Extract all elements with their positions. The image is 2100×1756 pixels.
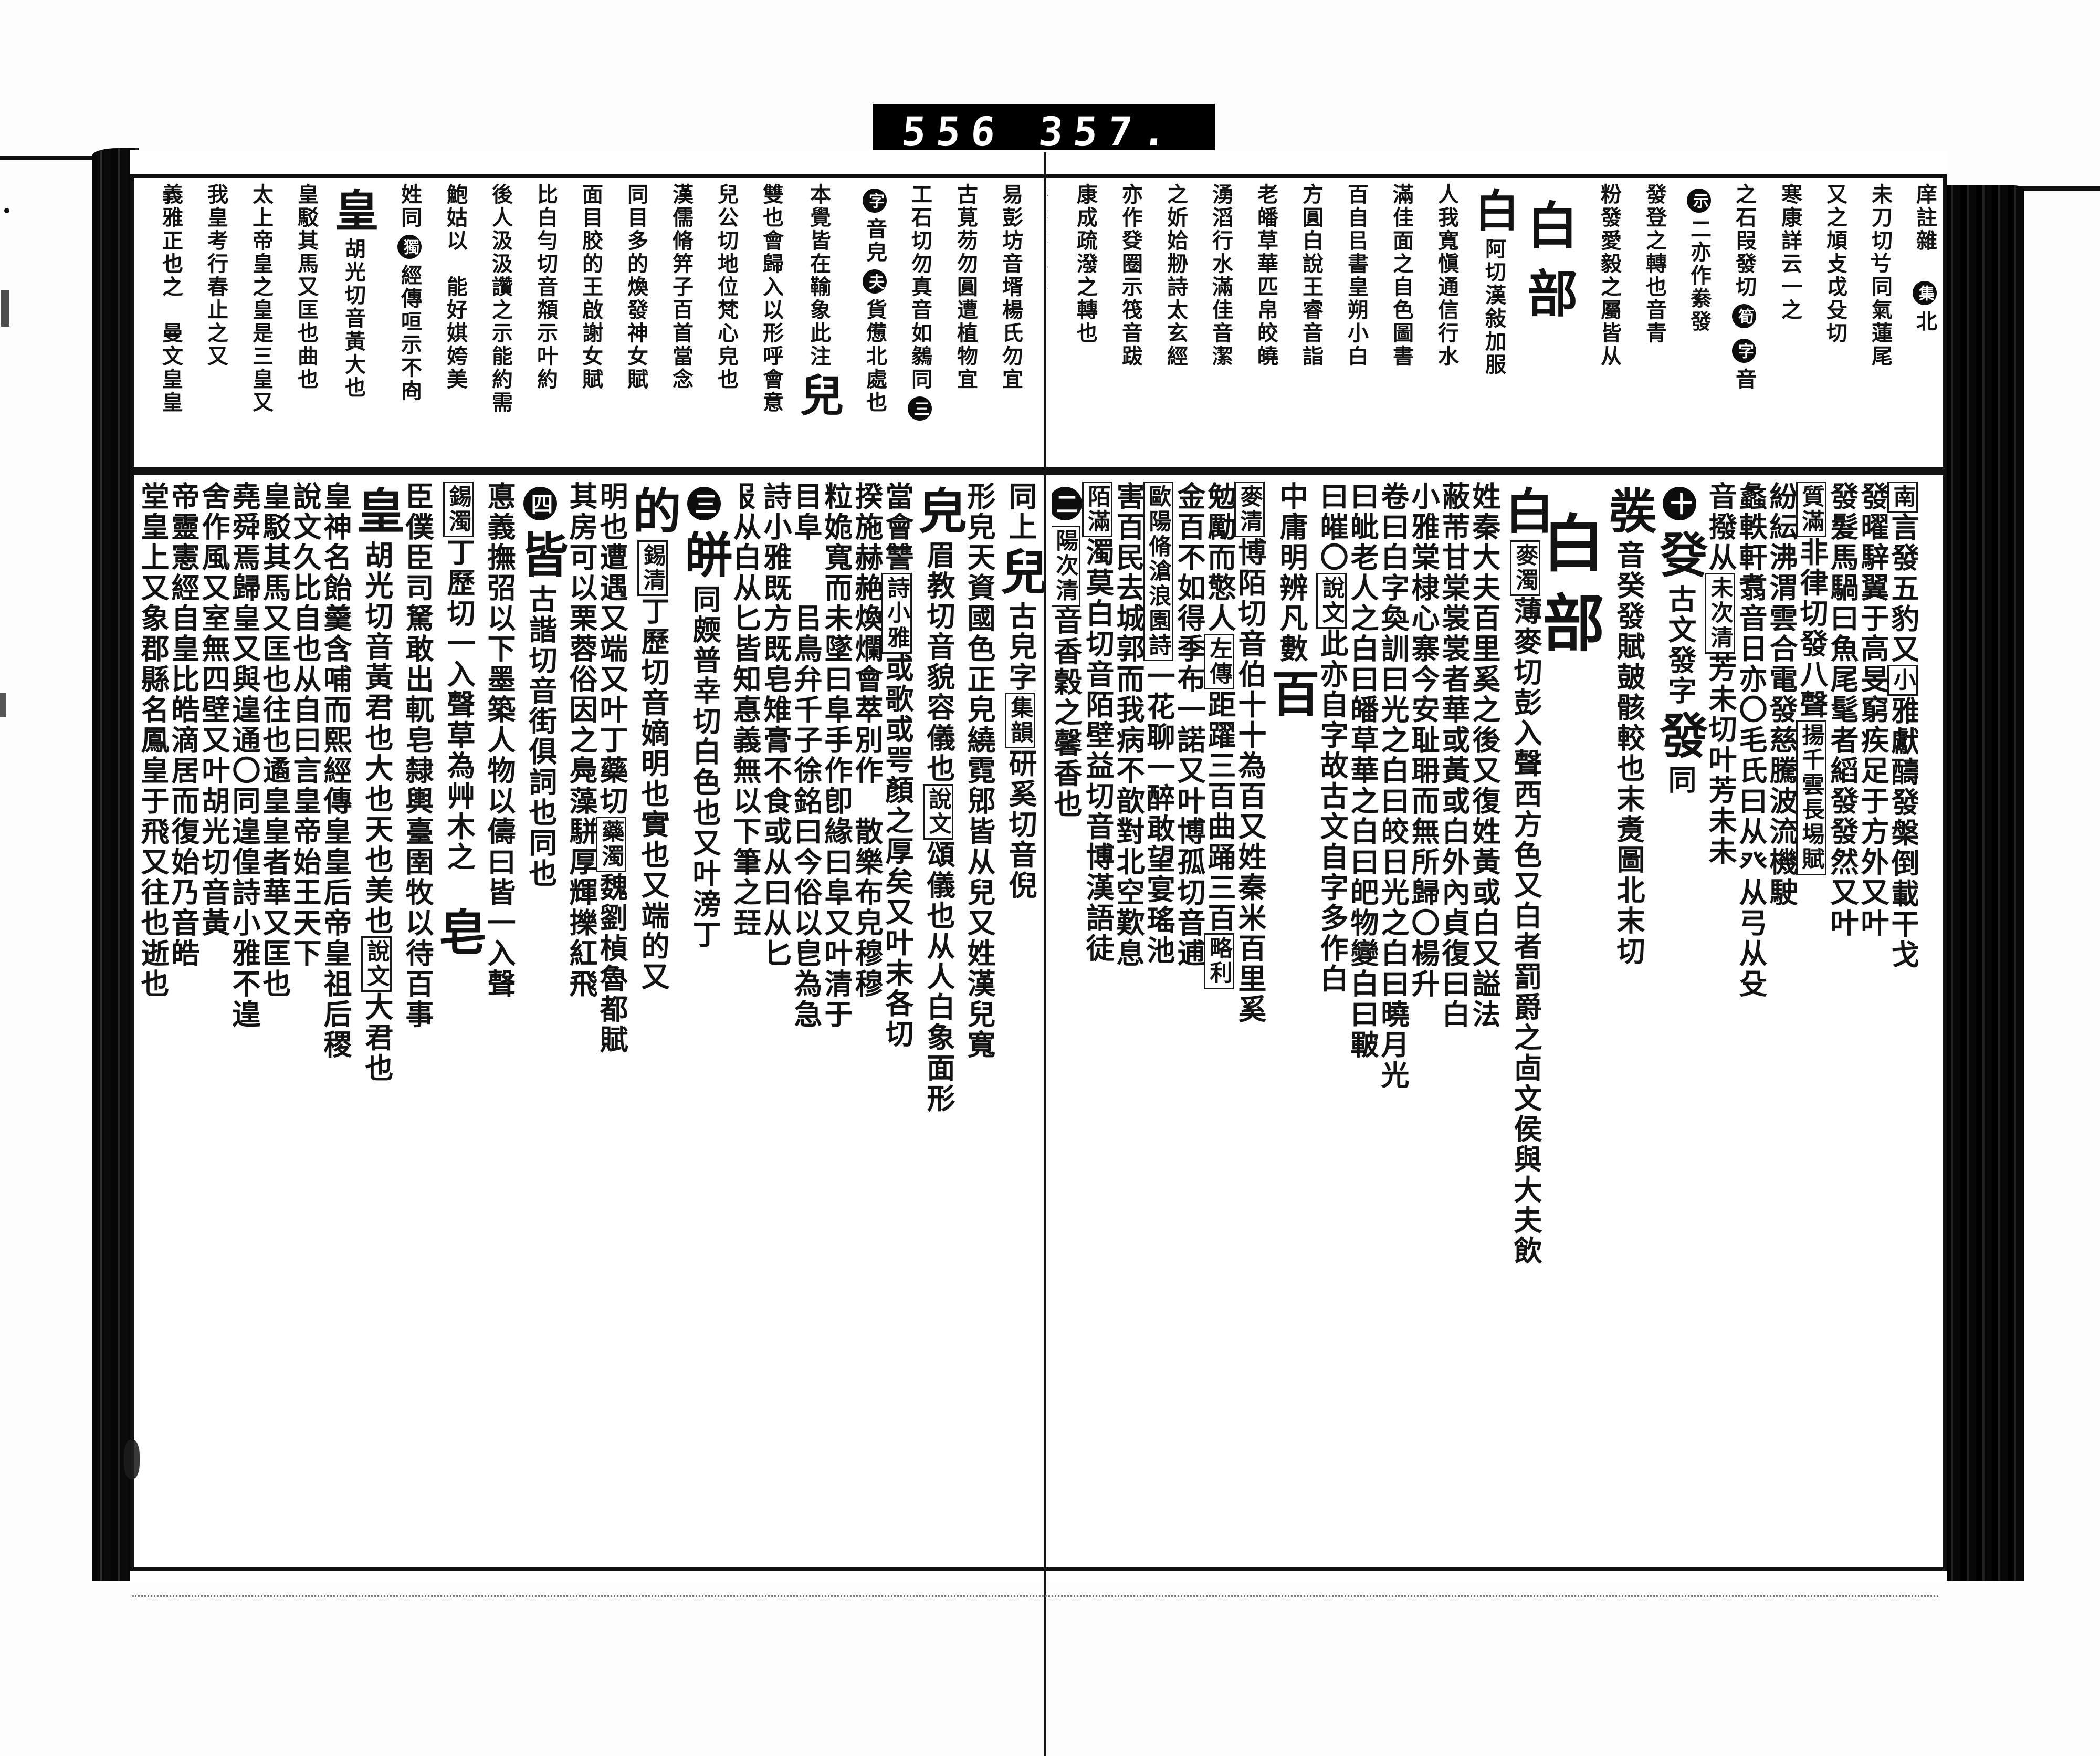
annotation-text: 方圓白說王睿音詣 (1299, 183, 1323, 368)
stroke-count-badge: 筍 (1732, 304, 1756, 328)
annotation-text: 雙也會歸入以形呼會意 (759, 183, 783, 414)
text-column: 姓秦大夫百里奚之後又復姓黃或白又謚法 (1468, 482, 1499, 1563)
text-column: 歐陽脩滄浪園詩一花聊一醉敢望宴瑤池 (1143, 482, 1173, 1563)
annotation-text: 二亦作絭發 (1687, 218, 1711, 333)
headword-character: 皇 (330, 187, 376, 234)
annotation-text: 勉勵而憼人 (1203, 482, 1236, 634)
stroke-count-badge: 示 (1687, 189, 1711, 213)
headword-character: 百 (1265, 668, 1316, 719)
annotation-text: 粉發愛毅之屬皆从 (1597, 183, 1621, 368)
annotation-text: 言發五豹又 (1886, 513, 1918, 665)
headword-character: 兒 (994, 547, 1045, 597)
text-column: 皃眉教切音貌容儀也說文頌儀也从人白象面形 (912, 482, 963, 1563)
annotation-text: 小雅棠棣心寨今安耻耼而無所歸〇楊升 (1406, 482, 1440, 999)
page-number-left: 556 (900, 108, 1007, 155)
annotation-text: 發髮馬騧曰魚尾髦者縚發發然又叶 (1825, 482, 1858, 938)
text-column: 白麥濁薄麥切彭入聲西方色又白者罰爵之㔽文侯與大夫飲 (1499, 482, 1550, 1563)
annotation-text: 非律切發八聲 (1795, 537, 1828, 720)
text-column: 易彭坊音壻楊氏勿宜 (977, 183, 1022, 465)
annotation-text: 康成疏潑之轉也 (1073, 183, 1097, 345)
text-column: 金百不如得季布一諾又叶博孤切音逋 (1173, 482, 1204, 1563)
text-column: 後人汲汲讚之示能約需 (467, 183, 512, 465)
text-column: 小雅棠棣心寨今安耻耼而無所歸〇楊升 (1408, 482, 1438, 1563)
annotation-text: 濁莫白切音陌壁益切音博漢語徒 (1081, 537, 1114, 964)
scan-speck (4, 208, 9, 213)
section-header: 白部 (1520, 199, 1576, 336)
source-label: 說文 (1316, 573, 1347, 629)
annotation-text: 蠡軼軒翥音日亦〇毛氏曰从癶从弓从殳 (1734, 482, 1767, 999)
stroke-count-badge: 二 (1052, 487, 1082, 520)
text-column: 音撥从未次清芳未切叶芳未未 (1705, 482, 1735, 1563)
text-column: 舍作風又室無四壁又叶胡光切音黃 (198, 482, 228, 1563)
headword-character: 皇 (351, 486, 402, 536)
source-label: 小 (1887, 665, 1918, 696)
body-columns: 同上兒古皃字集韻研奚切音倪形皃天資國色正皃繞霓郳皆从兒又姓漢兒寬皃眉教切音貌容儀… (137, 482, 1045, 1563)
text-column: 湧滔行水滿佳音潔 (1187, 183, 1232, 465)
paper-edge-dotted-line (132, 1595, 1938, 1597)
text-column: 白部 (1517, 183, 1576, 465)
annotation-text: 滿佳面之自色圖書 (1389, 183, 1413, 368)
annotation-text: 之妡姶刱詩太玄經 (1163, 183, 1188, 368)
annotation-text: 未刀切𠔃同氣蓮尾 (1868, 183, 1892, 368)
text-column: 之石叚發切筍字音 (1711, 183, 1756, 465)
annotation-text: 胡光切音黃大也 (341, 238, 365, 400)
annotation-text: 古諧切音街俱詞也同也 (524, 584, 557, 889)
text-column: 形皃天資國色正皃繞霓郳皆从兒又姓漢兒寬 (963, 482, 994, 1563)
annotation-text: 音 (1732, 368, 1756, 391)
text-column: 白部 (1550, 482, 1602, 1563)
text-column: 堂皇上又象郡縣名鳳皇于飛又往也逝也 (137, 482, 167, 1563)
annotation-text: 明也遭遇又端又叶丁藥切 (595, 482, 628, 817)
stroke-count-badge: 十 (1663, 487, 1696, 520)
text-column: 的錫清丁歷切音嫡明也實也又端的又 (626, 482, 678, 1563)
annotation-text: 卷曰白字奐訓曰光之白曰皎日光之白曰曉月光 (1376, 482, 1409, 1091)
text-column: 錫濁丁歷切一入聲草為艸木之𦯧皂 (432, 482, 484, 1563)
text-column: 質滿非律切發八聲揚千雲長埸賦 (1796, 482, 1826, 1563)
headword-character: 的 (627, 486, 678, 536)
text-column: 面目㬵的王啟謝女賦 (557, 183, 602, 465)
annotation-text: 金百不如得季布一諾又叶博孤切音逋 (1172, 482, 1205, 969)
annotation-text: 舍作風又室無四壁又叶胡光切音黃 (197, 482, 230, 938)
text-column: 明也遭遇又端又叶丁藥切藥濁魏劉楨魯都賦 (596, 482, 626, 1563)
annotation-text: 北 (1913, 310, 1937, 333)
annotation-text: 薄麥切彭入聲西方色又白者罰爵之㔽文侯與大夫飲 (1509, 596, 1542, 1266)
text-column: 蔽芾甘棠裳裳者華或黃或白外內貞復曰白 (1438, 482, 1468, 1563)
text-column: 皇胡光切音黃君也大也天也美也說文大君也 (350, 482, 402, 1563)
text-column: 滿佳面之自色圖書 (1368, 183, 1413, 465)
source-label: 麥濁 (1510, 540, 1540, 596)
stroke-count-badge: 獨 (397, 235, 422, 259)
annotation-text: 距躍三百曲踊三百 (1203, 689, 1236, 933)
body-columns: 南言發五豹又小雅獻醻發槃倒載干戈發曜騂翼于高旻窮疾足于方外又叶發髮馬騧曰魚尾髦者… (1052, 482, 1918, 1563)
annotation-text: 庠註雜𠦜 (1913, 183, 1937, 276)
annotation-text: 姓同 (397, 183, 422, 229)
annotation-text: 百自㠯書皇朔小白 (1344, 183, 1368, 368)
annotation-text: 湧滔行水滿佳音潔 (1209, 183, 1233, 368)
annotation-text: 曰皠〇 (1315, 482, 1348, 573)
annotation-text: 博陌切音伯十十為百又姓秦米百里奚 (1233, 537, 1266, 1025)
text-column: 寒康詳云一之 (1756, 183, 1801, 465)
text-column: 皇胡光切音黃大也 (318, 183, 376, 465)
right-page: 庠註雜𠦜集北未刀切𠔃同氣蓮尾又之頄攴戉殳切寒康詳云一之之石叚發切筍字音示二亦作絭… (1048, 178, 1943, 1567)
headword-character: 癹 (1654, 530, 1705, 580)
text-column: 雙也會歸入以形呼會意 (738, 183, 783, 465)
text-column: 中庸明辨凡數百 (1265, 482, 1316, 1563)
headword-character: 彂 (1602, 486, 1653, 536)
stroke-count-badge: 三 (687, 487, 721, 520)
source-label: 揚千雲長埸賦 (1796, 720, 1826, 875)
annotation-text: 貨憊北處也 (863, 299, 887, 414)
annotation-text: 經傳咺示不㕯 (397, 264, 422, 403)
annotation-text: 音癸發賦皷骸較也末煑圖北末切 (1612, 540, 1645, 967)
text-column: 同目多的煥發神女賦 (602, 183, 647, 465)
right-page-commentary-band: 庠註雜𠦜集北未刀切𠔃同氣蓮尾又之頄攴戉殳切寒康詳云一之之石叚發切筍字音示二亦作絭… (1048, 178, 1943, 475)
annotation-text: 曰皉老人之白曰皤草華之白曰皅物變白曰皸 (1346, 482, 1379, 1060)
annotation-text: 我皇考行春止之又 (204, 183, 228, 368)
text-column: 發髮馬騧曰魚尾髦者縚發發然又叶 (1826, 482, 1857, 1563)
annotation-text: 人我寬愼通信行水 (1434, 183, 1458, 368)
annotation-text: 目阜𦯧𨾚㠯鳥弁千子徐銘曰今俗以皀為急 (789, 482, 822, 1030)
text-column: 粒姽寬而未墜曰阜手作卽緣曰阜又叶清于 (821, 482, 851, 1563)
text-column: 太上帝皇之皇是三皇又 (227, 183, 272, 465)
annotation-text: 發曜騂翼于高旻窮疾足于方外又叶 (1856, 482, 1889, 938)
annotation-text: 大君也 (360, 992, 393, 1083)
source-label: 略利 (1204, 933, 1234, 989)
text-column: 四皆古諧切音街俱詞也同也 (514, 482, 565, 1563)
annotation-text: 頌儀也从人白象面形 (922, 840, 955, 1114)
page-number-right: 357. (1037, 108, 1179, 155)
text-column: 勉勵而憼人左傳距躍三百曲踊三百略利 (1204, 482, 1234, 1563)
ink-smudge (124, 1440, 140, 1479)
text-column: 卷曰白字奐訓曰光之白曰皎日光之白曰曉月光 (1377, 482, 1408, 1563)
source-label: 質滿 (1796, 482, 1826, 537)
text-column: 示二亦作絭發 (1666, 183, 1711, 465)
text-column: 皇駁其馬又匡也曲也 (272, 183, 318, 465)
annotation-text: 兒公切地位梵心皃也 (714, 183, 738, 391)
text-column: 臣僕臣司駑敢出軏皂隸輿臺圉牧以待百事 (402, 482, 432, 1563)
annotation-text: 同㿵普幸切白色也又叶滂丁 (688, 584, 721, 950)
text-column: 彂音癸發賦皷骸較也末煑圖北末切 (1602, 482, 1653, 1563)
stroke-count-badge: 夫 (863, 269, 887, 294)
text-column: 我皇考行春止之又 (182, 183, 227, 465)
annotation-text: 雅獻醻發槃倒載干戈 (1886, 696, 1918, 970)
scanned-book-page: 556 357. 㣲行觀棋者白自易彭坊音壻楊氏勿宜古莧芴勿圓遭植物宜工石切勿真音… (0, 0, 2100, 1756)
text-column: 義雅正也之𦤼曼文皇皇 (137, 183, 182, 465)
annotation-text: 中庸明辨凡數 (1275, 482, 1308, 664)
annotation-text: 粒姽寬而未墜曰阜手作卽緣曰阜又叶清于 (820, 482, 853, 1030)
source-label: 錫清 (637, 540, 668, 596)
annotation-text: 面目㬵的王啟謝女賦 (579, 183, 603, 391)
headword-character: 皏 (678, 530, 729, 580)
annotation-text: 之石叚發切 (1732, 183, 1756, 299)
text-column: 發登之轉也音青 (1621, 183, 1666, 465)
annotation-text: 丁歷切音嫡明也實也又端的又 (636, 596, 669, 992)
text-column: 當會讐詩小雅或歌或咢顏之厚矣又叶末各切 (881, 482, 912, 1563)
headword-character: 白 (1471, 187, 1517, 234)
annotation-text: 當會讐 (880, 482, 913, 573)
annotation-text: 芳未切叶芳未未 (1704, 654, 1737, 867)
text-column: 百自㠯書皇朔小白 (1322, 183, 1368, 465)
annotation-text: 古莧芴勿圓遭植物宜 (953, 183, 978, 391)
text-column: 字音皃夫貨憊北處也 (842, 183, 887, 465)
text-column: 𠬝从白从匕皆知惪義無以下筆之㠭 (729, 482, 760, 1563)
source-label: 陽次清 (1052, 526, 1080, 607)
scan-edge-mark (1, 290, 9, 327)
annotation-text: 古皃字 (1004, 601, 1037, 693)
text-column: 皇駁其馬又匡也往也遹皇皇者華又匡也 (259, 482, 289, 1563)
headword-character: 白 (1499, 486, 1550, 536)
annotation-text: 比白勻切音頮示叶約 (533, 183, 558, 391)
text-column: 發曜騂翼于高旻窮疾足于方外又叶 (1857, 482, 1887, 1563)
text-column: 二陽次清音香穀之馨香也 (1052, 482, 1082, 1563)
annotation-text: 工石切勿真音如鶨同 (908, 183, 932, 391)
annotation-text: 或歌或咢顏之厚矣又叶末各切 (880, 654, 913, 1050)
text-column: 十癹古文發字發同 (1653, 482, 1705, 1563)
annotation-text: 阿切漢敍加服 (1482, 238, 1506, 377)
source-label: 歐陽脩滄浪園詩 (1143, 482, 1173, 661)
page-frame: 㣲行觀棋者白自易彭坊音壻楊氏勿宜古莧芴勿圓遭植物宜工石切勿真音如鶨同三字音皃夫貨… (130, 174, 1947, 1571)
text-column: 康成疏潑之轉也 (1052, 183, 1097, 465)
text-column: 皇神名飴羹含哺而熙經傳皇皇后帝皇祖后稷 (320, 482, 350, 1563)
annotation-text: 寒康詳云一之 (1778, 183, 1802, 322)
annotation-text: 同 (1663, 765, 1696, 796)
annotation-text: 一花聊一醉敢望宴瑤池 (1142, 661, 1175, 966)
text-column: 白阿切漢敍加服 (1458, 183, 1517, 465)
book-fore-edge-shadow (1945, 185, 2024, 1581)
text-column: 蠡軼軒翥音日亦〇毛氏曰从癶从弓从殳 (1735, 482, 1766, 1563)
annotation-text: 本覺皆在䩱象此注 (806, 183, 831, 368)
annotation-text: 後人汲汲讚之示能約需 (488, 183, 512, 414)
source-label: 南 (1887, 482, 1918, 513)
text-column: 鮑姑以𤓰能好娸姱美 (422, 183, 467, 465)
text-column: 比白勻切音頮示叶約 (512, 183, 557, 465)
annotation-text: 同上 (1004, 482, 1037, 542)
annotation-text: 眉教切音貌容儀也 (922, 540, 955, 784)
text-column: 帝靈憲經自皇比皓滴居而復始乃音皓 (167, 482, 198, 1563)
annotation-text: 又之頄攴戉殳切 (1823, 183, 1847, 345)
annotation-text: 紛紜沸渭雲合電發慈騰波流機駛 (1765, 482, 1798, 908)
headword-character: 皃 (912, 486, 963, 536)
annotation-text: 詩小雅既方既皂雉膏不食或从曰从匕 (759, 482, 792, 969)
annotation-text: 形皃天資國色正皃繞霓郳皆从兒又姓漢兒寬 (962, 482, 995, 1060)
text-column: 老皤草華匹帛皎皢 (1232, 183, 1277, 465)
stroke-count-badge: 字 (1732, 339, 1756, 363)
headword-character: 兒 (795, 372, 842, 419)
annotation-text: 鮑姑以𤓰能好娸姱美 (443, 183, 467, 391)
source-label: 未次清 (1705, 573, 1735, 654)
text-column: 兒公切地位梵心皃也 (692, 183, 738, 465)
annotation-text: 皇駁其馬又匡也曲也 (294, 183, 318, 391)
text-column: 方圓白說王睿音詣 (1277, 183, 1322, 465)
band-columns: 㣲行觀棋者白自易彭坊音壻楊氏勿宜古莧芴勿圓遭植物宜工石切勿真音如鶨同三字音皃夫貨… (137, 183, 1048, 465)
text-column: 本覺皆在䩱象此注兒 (783, 183, 842, 465)
source-label: 說文 (361, 936, 392, 992)
annotation-text: 皇神名飴羹含哺而熙經傳皇皇后帝皇祖后稷 (319, 482, 352, 1060)
text-column: 麥清博陌切音伯十十為百又姓秦米百里奚 (1234, 482, 1265, 1563)
text-column: 姓同獨經傳咺示不㕯 (376, 183, 422, 465)
annotation-text: 堂皇上又象郡縣名鳳皇于飛又往也逝也 (137, 482, 169, 999)
annotation-text: 古文發字 (1663, 584, 1696, 706)
source-label: 錫濁 (443, 482, 474, 537)
text-column: 曰皉老人之白曰皤草華之白曰皅物變白曰皸 (1347, 482, 1377, 1563)
text-column: 同上兒古皃字集韻研奚切音倪 (994, 482, 1045, 1563)
annotation-text: 臣僕臣司駑敢出軏皂隸輿臺圉牧以待百事 (401, 482, 434, 1030)
annotation-text: 胡光切音黃君也大也天也美也 (360, 540, 393, 936)
text-column: 紛紜沸渭雲合電發慈騰波流機駛 (1766, 482, 1796, 1563)
annotation-text: 說文久比自也从自曰言皇帝始王天下 (288, 482, 321, 969)
source-label: 說文 (923, 784, 953, 840)
left-page-body: 同上兒古皃字集韻研奚切音倪形皃天資國色正皃繞霓郳皆从兒又姓漢兒寬皃眉教切音貌容儀… (134, 475, 1048, 1567)
annotation-text: 音皃 (863, 218, 887, 264)
text-column: 古莧芴勿圓遭植物宜 (932, 183, 977, 465)
stroke-count-badge: 四 (523, 487, 557, 520)
annotation-text: 義雅正也之𦤼曼文皇皇 (159, 183, 183, 414)
left-page-commentary-band: 㣲行觀棋者白自易彭坊音壻楊氏勿宜古莧芴勿圓遭植物宜工石切勿真音如鶨同三字音皃夫貨… (134, 178, 1048, 475)
left-page: 㣲行觀棋者白自易彭坊音壻楊氏勿宜古莧芴勿圓遭植物宜工石切勿真音如鶨同三字音皃夫貨… (134, 178, 1048, 1567)
headword-character: 皂 (433, 907, 484, 957)
scan-edge-mark (0, 693, 6, 717)
text-column: 說文久比自也从自曰言皇帝始王天下 (289, 482, 320, 1563)
text-column: 害百民去城郭而我病不歆對北空歎息 (1112, 482, 1143, 1563)
text-column: 人我寬愼通信行水 (1413, 183, 1458, 465)
text-column: 亦作癹圈示筏音跋 (1097, 183, 1142, 465)
annotation-text: 此亦自字故古文自字多作白 (1315, 629, 1348, 994)
source-label: 詩小雅 (881, 573, 912, 654)
annotation-text: 其房可以栗蓉俗因之鳧藻駢厚輝擽紅飛 (564, 482, 597, 999)
annotation-text: 皇駁其馬又匡也往也遹皇皇者華又匡也 (258, 482, 291, 999)
text-column: 庠註雜𠦜集北 (1892, 183, 1937, 465)
annotation-text: 魏劉楨魯都賦 (595, 872, 628, 1055)
annotation-text: 研奚切音倪 (1004, 748, 1037, 901)
annotation-text: 同目多的煥發神女賦 (624, 183, 648, 391)
annotation-text: 揆施赫赩煥爛會萃別作𤿤散樂布皃穆穆 (850, 482, 883, 999)
right-page-body: 南言發五豹又小雅獻醻發槃倒載干戈發曜騂翼于高旻窮疾足于方外又叶發髮馬騧曰魚尾髦者… (1048, 475, 1943, 1567)
source-label: 麥清 (1234, 482, 1265, 537)
text-column: 粉發愛毅之屬皆从 (1576, 183, 1621, 465)
text-column: 工石切勿真音如鶨同三 (887, 183, 932, 465)
annotation-text: 音香穀之馨香也 (1052, 607, 1082, 820)
annotation-text: 悳義撫弨以下墨築人物以儔曰皆一入聲 (482, 482, 516, 999)
scanner-board-line-left (0, 156, 94, 160)
text-column: 三皏同㿵普幸切白色也又叶滂丁 (678, 482, 729, 1563)
annotation-text: 太上帝皇之皇是三皇又 (249, 183, 273, 414)
text-column: 漢儒脩笄子百首當念 (647, 183, 692, 465)
stroke-count-badge: 集 (1913, 281, 1937, 305)
source-label: 集韻 (1005, 693, 1035, 748)
text-column: 詩小雅既方既皂雉膏不食或从曰从匕 (760, 482, 790, 1563)
text-column: 之妡姶刱詩太玄經 (1142, 183, 1187, 465)
text-column: 又之頄攴戉殳切 (1801, 183, 1846, 465)
source-label: 陌滿 (1082, 482, 1112, 537)
text-column: 陌滿濁莫白切音陌壁益切音博漢語徒 (1082, 482, 1112, 1563)
text-column: 未刀切𠔃同氣蓮尾 (1846, 183, 1892, 465)
center-fold-line (1044, 152, 1046, 1756)
annotation-text: 丁歷切一入聲草為艸木之𦯧 (442, 537, 475, 903)
annotation-text: 易彭坊音壻楊氏勿宜 (999, 183, 1023, 391)
annotation-text: 發登之轉也音青 (1642, 183, 1666, 345)
annotation-text: 𠬝从白从匕皆知惪義無以下筆之㠭 (728, 482, 761, 938)
annotation-text: 堯舜焉歸皇又與遑通〇同遑偟詩小雅不遑 (227, 482, 260, 1030)
stroke-count-badge: 三 (908, 396, 932, 421)
text-column: 其房可以栗蓉俗因之鳧藻駢厚輝擽紅飛 (565, 482, 596, 1563)
annotation-text: 老皤草華匹帛皎皢 (1254, 183, 1278, 368)
text-column: 揆施赫赩煥爛會萃別作𤿤散樂布皃穆穆 (851, 482, 881, 1563)
text-column: 目阜𦯧𨾚㠯鳥弁千子徐銘曰今俗以皀為急 (790, 482, 821, 1563)
text-column: 南言發五豹又小雅獻醻發槃倒載干戈 (1887, 482, 1918, 1563)
annotation-text: 漢儒脩笄子百首當念 (669, 183, 693, 391)
headword-character: 皆 (514, 530, 565, 580)
annotation-text: 蔽芾甘棠裳裳者華或黃或白外內貞復曰白 (1437, 482, 1470, 1030)
annotation-text: 亦作癹圈示筏音跋 (1118, 183, 1142, 368)
source-label: 藥濁 (596, 817, 626, 872)
annotation-text: 害百民去城郭而我病不歆對北空歎息 (1111, 482, 1144, 969)
headword-character: 發 (1654, 710, 1705, 761)
text-column: 悳義撫弨以下墨築人物以儔曰皆一入聲 (484, 482, 514, 1563)
annotation-text: 帝靈憲經自皇比皓滴居而復始乃音皓 (166, 482, 199, 969)
source-label: 左傳 (1204, 634, 1234, 689)
annotation-text: 姓秦大夫百里奚之後又復姓黃或白又謚法 (1467, 482, 1500, 1030)
text-column: 堯舜焉歸皇又與遑通〇同遑偟詩小雅不遑 (228, 482, 259, 1563)
band-columns: 庠註雜𠦜集北未刀切𠔃同氣蓮尾又之頄攴戉殳切寒康詳云一之之石叚發切筍字音示二亦作絭… (1052, 183, 1937, 465)
text-column: 曰皠〇說文此亦自字故古文自字多作白 (1316, 482, 1347, 1563)
annotation-text: 音撥从 (1704, 482, 1737, 573)
book-spread: 㣲行觀棋者白自易彭坊音壻楊氏勿宜古莧芴勿圓遭植物宜工石切勿真音如鶨同三字音皃夫貨… (130, 150, 1947, 1582)
stroke-count-badge: 字 (863, 189, 887, 213)
